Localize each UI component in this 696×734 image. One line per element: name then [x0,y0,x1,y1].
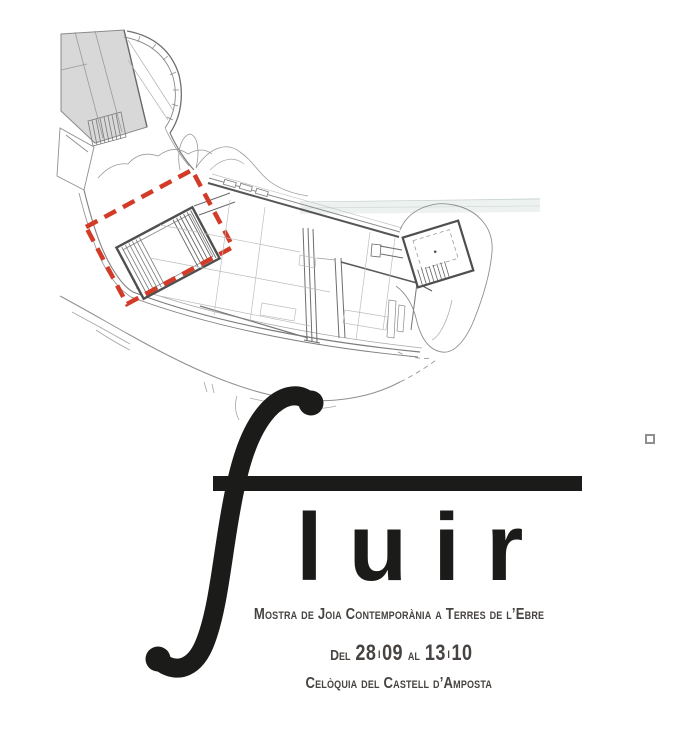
date-end-month: 10 [452,640,473,665]
terrain-contours [60,296,436,420]
subtitle-text: Mostra de Joia Contemporània a Terres de… [254,604,544,626]
rocks [98,134,308,196]
annex-entrance [371,244,403,258]
castle-main-building [61,30,147,143]
placeholder-square [645,434,655,444]
venue-line: Celòquia del Castell d’Amposta [102,673,696,695]
title-rest-text: luir [296,500,549,596]
celoquia-room [116,207,219,299]
date-start-month: 09 [382,640,403,665]
date-separator-2: I [446,649,452,661]
room-connector-walls [194,193,235,215]
date-connector: al [408,647,420,664]
date-prefix: Del [330,647,350,664]
date-end-day: 13 [425,640,446,665]
date-line: Del28I09al13I10 [102,640,696,670]
water-tint-band [300,198,540,214]
date-start-day: 28 [356,640,377,665]
annex-building [403,221,474,288]
date-separator-1: I [377,649,383,661]
title-underline-bar [213,476,582,491]
venue-text: Celòquia del Castell d’Amposta [306,673,493,695]
subtitle-line: Mostra de Joia Contemporània a Terres de… [102,604,696,626]
poster: luir Mostra de Joia Contemporània a Terr… [0,0,696,734]
